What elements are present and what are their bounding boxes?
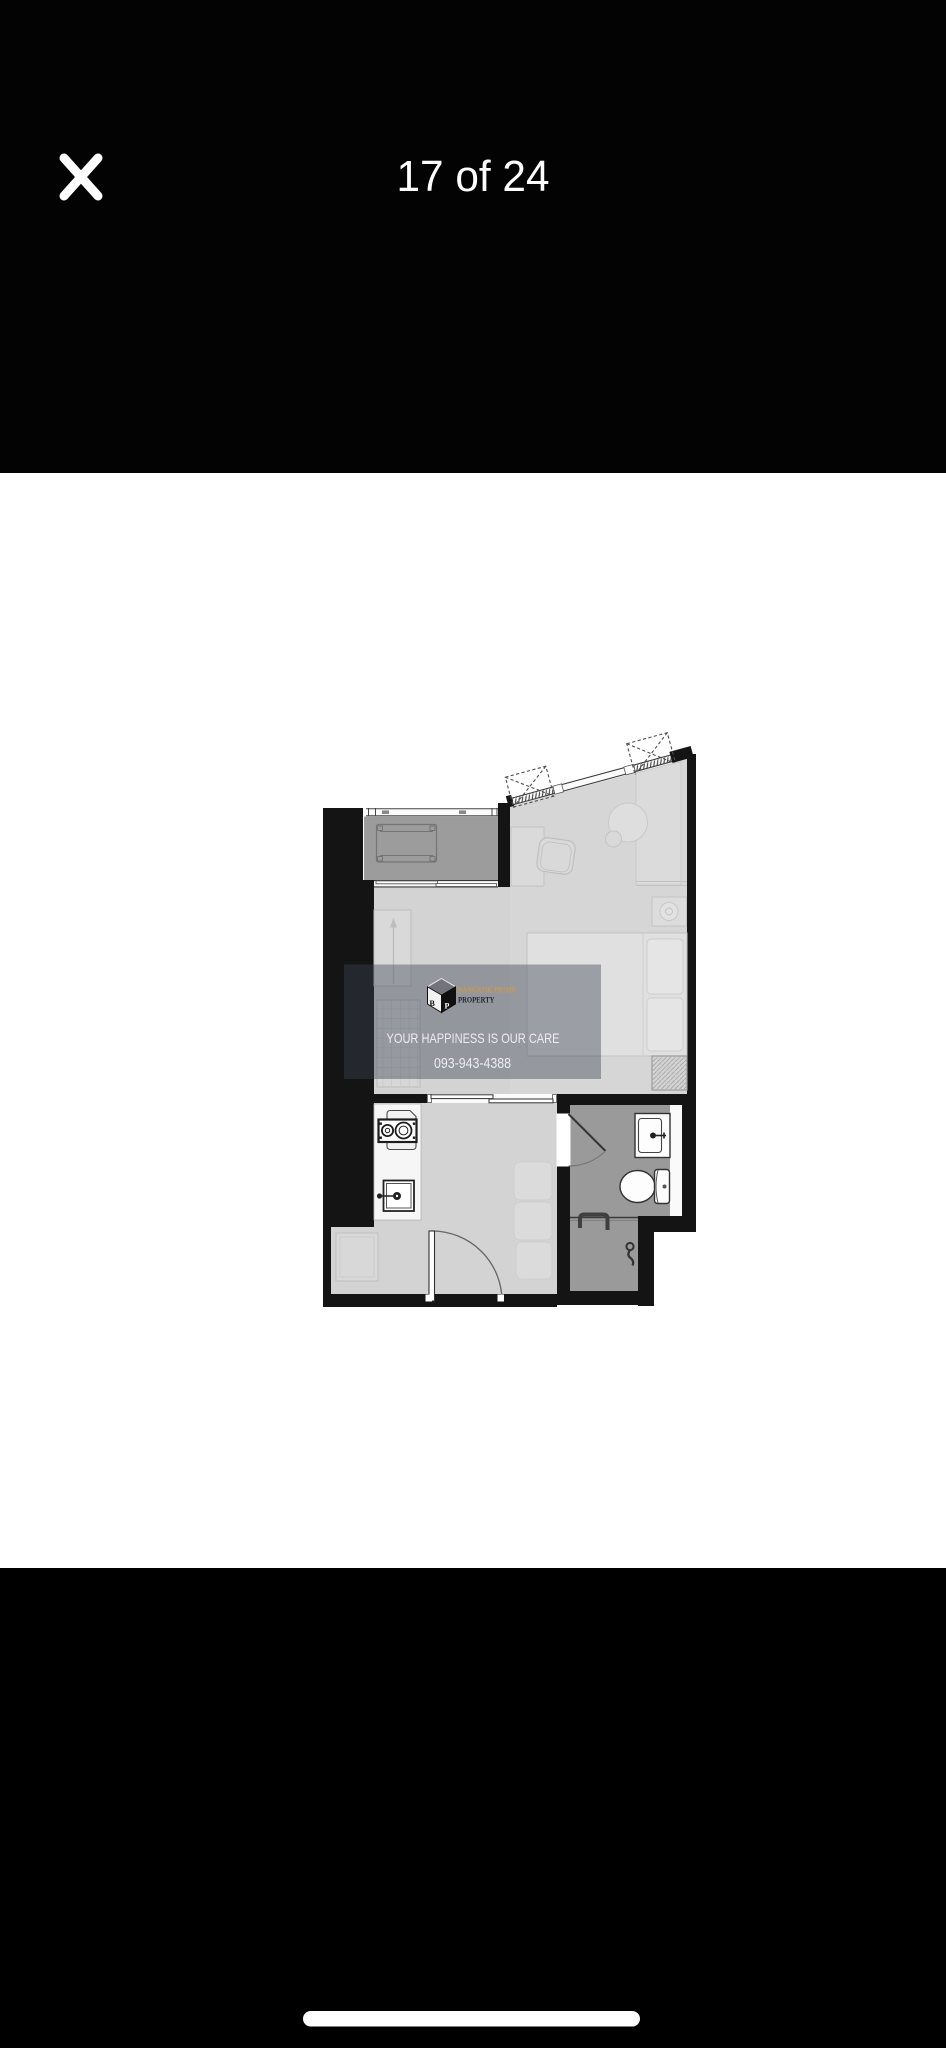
- svg-text:093-943-4388: 093-943-4388: [434, 1056, 511, 1072]
- svg-text:B: B: [430, 999, 436, 1008]
- svg-text:PROPERTY: PROPERTY: [458, 996, 495, 1005]
- svg-text:P: P: [445, 1002, 450, 1011]
- svg-text:17 of 24: 17 of 24: [397, 152, 550, 201]
- svg-text:YOUR HAPPINESS IS OUR CARE: YOUR HAPPINESS IS OUR CARE: [387, 1030, 560, 1046]
- svg-text:BANGKOK PRIME: BANGKOK PRIME: [458, 986, 516, 995]
